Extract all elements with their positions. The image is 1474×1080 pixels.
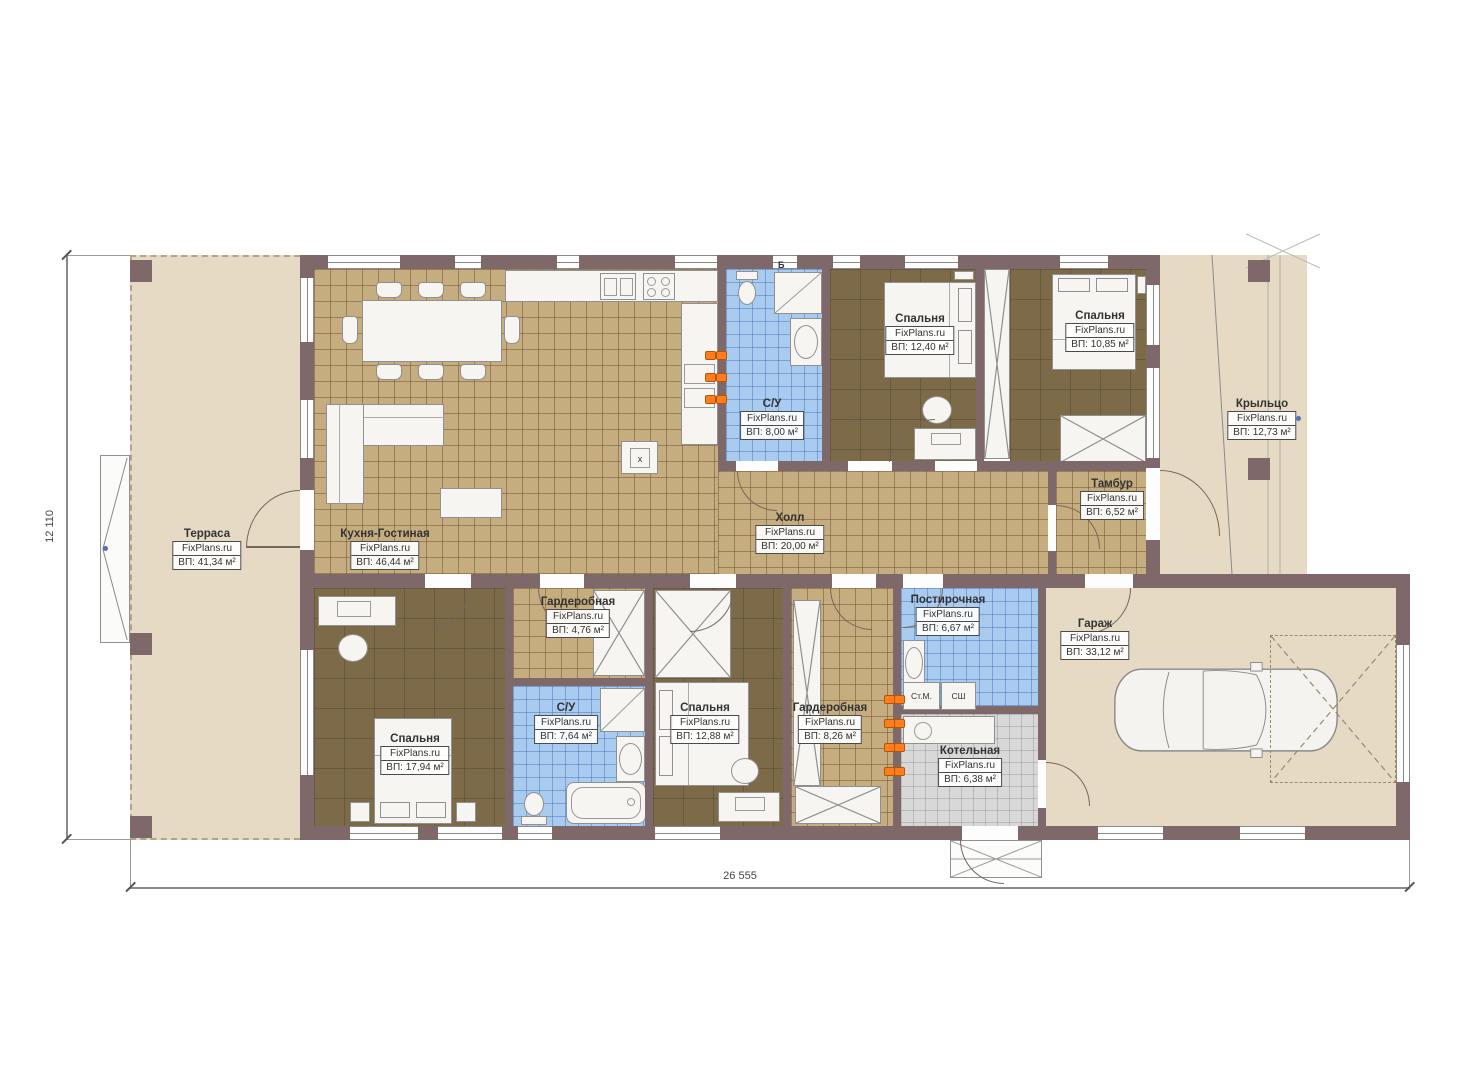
window xyxy=(675,255,717,269)
room-brand: FixPlans.ru xyxy=(1066,324,1133,338)
room-brand: FixPlans.ru xyxy=(173,542,240,556)
room-name: Спальня xyxy=(1065,310,1134,322)
wall-top xyxy=(300,255,1160,269)
toilet xyxy=(521,816,547,825)
wall-hall-north xyxy=(718,461,1146,471)
room-label-terrace: Терраса FixPlans.ruВП: 41,34 м² xyxy=(172,528,241,570)
nightstand xyxy=(456,802,476,822)
pillow xyxy=(958,330,972,364)
nightstand xyxy=(1137,276,1146,294)
room-name: Холл xyxy=(755,512,824,524)
room-brand: FixPlans.ru xyxy=(1061,632,1128,646)
bathtub xyxy=(566,782,646,824)
wall-wardrobe-bath2 xyxy=(505,678,653,686)
heating-outlet-icon xyxy=(716,373,727,382)
room-label-hall: Холл FixPlans.ruВП: 20,00 м² xyxy=(755,512,824,554)
window xyxy=(773,255,797,269)
wardrobe-unit xyxy=(984,269,1010,459)
heating-outlet-icon xyxy=(705,351,716,360)
office-chair xyxy=(731,758,759,784)
kitchen-base-cabinet: x xyxy=(621,441,658,474)
window xyxy=(300,400,314,458)
room-area: ВП: 6,67 м² xyxy=(917,622,979,635)
room-area: ВП: 46,44 м² xyxy=(351,556,418,569)
room-name: Спальня xyxy=(670,702,739,714)
room-label-bedroom-bottom: Спальня FixPlans.ruВП: 12,88 м² xyxy=(670,702,739,744)
room-area: ВП: 12,88 м² xyxy=(671,730,738,743)
wall-bedroom4-right xyxy=(783,588,791,826)
office-chair xyxy=(338,634,368,662)
room-area: ВП: 8,00 м² xyxy=(741,426,803,439)
window xyxy=(438,826,502,840)
room-brand: FixPlans.ru xyxy=(886,327,953,341)
room-label-bathroom-bottom: С/У FixPlans.ruВП: 7,64 м² xyxy=(534,702,598,744)
pillow xyxy=(416,802,446,818)
room-name: Спальня xyxy=(380,733,449,745)
door-opening xyxy=(736,461,778,471)
pillow xyxy=(380,802,410,818)
heating-outlet-icon xyxy=(716,351,727,360)
room-brand: FixPlans.ru xyxy=(1081,492,1143,506)
boiler-counter xyxy=(903,716,995,744)
room-area: ВП: 12,40 м² xyxy=(886,341,953,354)
chair xyxy=(342,316,358,344)
garage-gate xyxy=(1396,645,1410,782)
window xyxy=(1146,368,1160,458)
room-label-boiler: Котельная FixPlans.ruВП: 6,38 м² xyxy=(938,745,1002,787)
room-label-wardrobe-big: Гардеробная FixPlans.ruВП: 8,26 м² xyxy=(793,702,867,744)
room-area: ВП: 6,52 м² xyxy=(1081,506,1143,519)
drying-cabinet: СШ xyxy=(941,682,976,710)
dimension-line-horizontal xyxy=(130,887,1410,889)
window xyxy=(455,255,481,269)
room-label-garage: Гараж FixPlans.ruВП: 33,12 м² xyxy=(1060,618,1129,660)
chair xyxy=(418,364,444,380)
room-label-porch: Крыльцо FixPlans.ruВП: 12,73 м² xyxy=(1227,398,1296,440)
door-opening xyxy=(540,574,584,588)
room-brand: FixPlans.ru xyxy=(939,759,1001,773)
heating-outlet-icon xyxy=(894,719,905,728)
wall-bath2-right xyxy=(645,588,653,826)
room-label-wardrobe-small: Гардеробная FixPlans.ruВП: 4,76 м² xyxy=(541,596,615,638)
coffee-table xyxy=(440,488,502,518)
room-label-bathroom-top: С/У FixPlans.ruВП: 8,00 м² xyxy=(740,398,804,440)
toilet-bowl xyxy=(524,792,544,816)
toilet xyxy=(736,271,758,280)
room-name: Постирочная xyxy=(911,594,986,606)
extension-line xyxy=(130,840,131,887)
room-area: ВП: 33,12 м² xyxy=(1061,646,1128,659)
terrace-column xyxy=(130,260,152,282)
room-name: Гардеробная xyxy=(793,702,867,714)
room-name: Гараж xyxy=(1060,618,1129,630)
extension-line xyxy=(1409,840,1410,887)
door-opening xyxy=(848,461,892,471)
dimension-label-horizontal: 26 555 xyxy=(723,870,757,882)
sink xyxy=(794,325,818,359)
chair xyxy=(504,316,520,344)
room-name: С/У xyxy=(740,398,804,410)
room-area: ВП: 8,26 м² xyxy=(799,730,861,743)
door-opening xyxy=(903,574,943,588)
chair xyxy=(376,282,402,298)
room-area: ВП: 10,85 м² xyxy=(1066,338,1133,351)
nightstand xyxy=(954,271,974,280)
dining-table xyxy=(362,300,502,362)
window xyxy=(905,255,958,269)
room-brand: FixPlans.ru xyxy=(1228,412,1295,426)
room-area: ВП: 4,76 м² xyxy=(547,624,609,637)
wall-bedrooms-divider xyxy=(976,269,984,461)
room-label-bedroom-top-1: Спальня FixPlans.ruВП: 12,40 м² xyxy=(885,313,954,355)
porch-column xyxy=(1248,260,1270,282)
extension-line xyxy=(66,839,130,840)
room-label-laundry: Постирочная FixPlans.ruВП: 6,67 м² xyxy=(911,594,986,636)
window xyxy=(1060,255,1108,269)
chair xyxy=(460,282,486,298)
room-area: ВП: 20,00 м² xyxy=(756,540,823,553)
room-brand: FixPlans.ru xyxy=(351,542,418,556)
room-label-vestibule: Тамбур FixPlans.ruВП: 6,52 м² xyxy=(1080,478,1144,520)
heating-outlet-icon xyxy=(716,395,727,404)
heating-outlet-icon xyxy=(894,695,905,704)
terrace-column xyxy=(130,816,152,838)
window xyxy=(1098,826,1163,840)
door-opening xyxy=(300,490,314,550)
room-label-bedroom-top-2: Спальня FixPlans.ruВП: 10,85 м² xyxy=(1065,310,1134,352)
room-name: Котельная xyxy=(938,745,1002,757)
garage-gate-zone xyxy=(1270,635,1396,783)
room-label-bedroom-master: Спальня FixPlans.ruВП: 17,94 м² xyxy=(380,733,449,775)
window xyxy=(1146,285,1160,345)
sink xyxy=(905,647,923,679)
floor-plan: x Б Ст.М. СШ xyxy=(0,0,1474,1080)
heating-outlet-icon xyxy=(705,373,716,382)
room-area: ВП: 41,34 м² xyxy=(173,556,240,569)
window xyxy=(833,255,860,269)
annotation-dot xyxy=(1296,416,1301,421)
window xyxy=(328,255,400,269)
door-opening xyxy=(1038,760,1046,808)
room-area: ВП: 17,94 м² xyxy=(381,761,448,774)
room-name: Тамбур xyxy=(1080,478,1144,490)
chair xyxy=(418,282,444,298)
kitchen-unit-label: x xyxy=(630,448,650,468)
pillow xyxy=(958,288,972,322)
wall-master-right xyxy=(505,588,513,826)
door-opening xyxy=(425,574,471,588)
pillow xyxy=(1096,278,1128,292)
door-opening xyxy=(1085,574,1133,588)
room-name: Кухня-Гостиная xyxy=(340,528,429,540)
pillow xyxy=(1058,278,1090,292)
door-opening xyxy=(832,574,876,588)
toilet-bowl xyxy=(738,281,756,305)
window xyxy=(300,650,314,775)
stove xyxy=(643,273,675,300)
room-brand: FixPlans.ru xyxy=(671,716,738,730)
room-brand: FixPlans.ru xyxy=(756,526,823,540)
window xyxy=(1240,826,1305,840)
heating-outlet-icon xyxy=(894,767,905,776)
wall-bath-bedroom xyxy=(822,269,830,465)
entrance-door-opening xyxy=(962,826,1018,840)
room-area: ВП: 12,73 м² xyxy=(1228,426,1295,439)
room-area: ВП: 6,38 м² xyxy=(939,773,1001,786)
room-brand: FixPlans.ru xyxy=(547,610,609,624)
wardrobe-unit xyxy=(1060,415,1146,463)
dimension-label-vertical: 12 110 xyxy=(44,510,56,543)
nightstand xyxy=(350,802,370,822)
room-brand: FixPlans.ru xyxy=(917,608,979,622)
window xyxy=(557,255,579,269)
annotation-dot xyxy=(103,546,108,551)
wall-kitchen-bath xyxy=(718,269,726,465)
room-area: ВП: 7,64 м² xyxy=(535,730,597,743)
wardrobe-unit xyxy=(793,600,821,786)
wardrobe-unit xyxy=(795,786,881,824)
room-name: Крыльцо xyxy=(1227,398,1296,410)
washing-machine: Ст.М. xyxy=(903,682,940,710)
window xyxy=(518,826,552,840)
door-opening xyxy=(1048,505,1056,551)
chair xyxy=(460,364,486,380)
room-brand: FixPlans.ru xyxy=(535,716,597,730)
terrace-column xyxy=(130,633,152,655)
desk xyxy=(718,792,780,822)
room-brand: FixPlans.ru xyxy=(381,747,448,761)
dimension-line-vertical xyxy=(66,255,68,840)
shower-tray xyxy=(774,272,822,314)
sofa xyxy=(326,404,364,504)
heating-outlet-icon xyxy=(705,395,716,404)
porch-column xyxy=(1248,458,1270,480)
room-name: Терраса xyxy=(172,528,241,540)
door-opening xyxy=(1146,468,1160,540)
desk xyxy=(318,596,396,626)
room-label-kitchen-living: Кухня-Гостиная FixPlans.ruВП: 46,44 м² xyxy=(340,528,429,570)
room-name: Гардеробная xyxy=(541,596,615,608)
room-name: Спальня xyxy=(885,313,954,325)
heating-outlet-icon xyxy=(894,743,905,752)
room-brand: FixPlans.ru xyxy=(741,412,803,426)
kitchen-sink xyxy=(600,273,636,300)
window xyxy=(350,826,418,840)
water-heater-label: Б xyxy=(778,260,784,270)
sink xyxy=(619,743,642,775)
door-opening xyxy=(690,574,736,588)
room-brand: FixPlans.ru xyxy=(799,716,861,730)
shower-tray xyxy=(600,688,645,732)
room-name: С/У xyxy=(534,702,598,714)
chair xyxy=(376,364,402,380)
window xyxy=(300,278,314,342)
extension-line xyxy=(66,255,130,256)
door-opening xyxy=(935,461,977,471)
window xyxy=(655,826,720,840)
